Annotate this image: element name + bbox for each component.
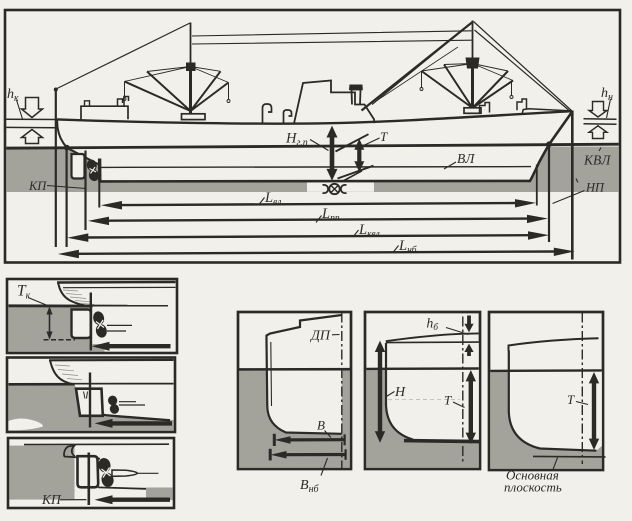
svg-text:hн: hн bbox=[601, 86, 613, 103]
svg-text:Тк: Тк bbox=[17, 283, 31, 302]
svg-text:КВЛ: КВЛ bbox=[583, 153, 611, 168]
svg-text:Lквл: Lквл bbox=[358, 222, 380, 240]
svg-text:НП: НП bbox=[585, 181, 605, 195]
svg-text:КП: КП bbox=[41, 492, 62, 507]
svg-text:плоскость: плоскость bbox=[504, 480, 562, 495]
svg-text:Н: Н bbox=[394, 385, 406, 400]
svg-text:ВЛ: ВЛ bbox=[457, 151, 475, 166]
svg-text:КП: КП bbox=[28, 179, 47, 193]
svg-text:Внб: Внб bbox=[300, 478, 320, 495]
svg-text:В: В bbox=[317, 418, 325, 433]
svg-text:Т: Т bbox=[380, 129, 388, 144]
svg-text:Lпп: Lпп bbox=[321, 206, 340, 224]
svg-text:Lнб: Lнб bbox=[398, 238, 418, 256]
svg-text:Lвл: Lвл bbox=[264, 190, 281, 208]
svg-text:Т: Т bbox=[444, 393, 452, 408]
svg-text:Т: Т bbox=[567, 392, 575, 407]
svg-text:ДП: ДП bbox=[309, 329, 331, 344]
svg-text:hб: hб bbox=[427, 316, 440, 334]
